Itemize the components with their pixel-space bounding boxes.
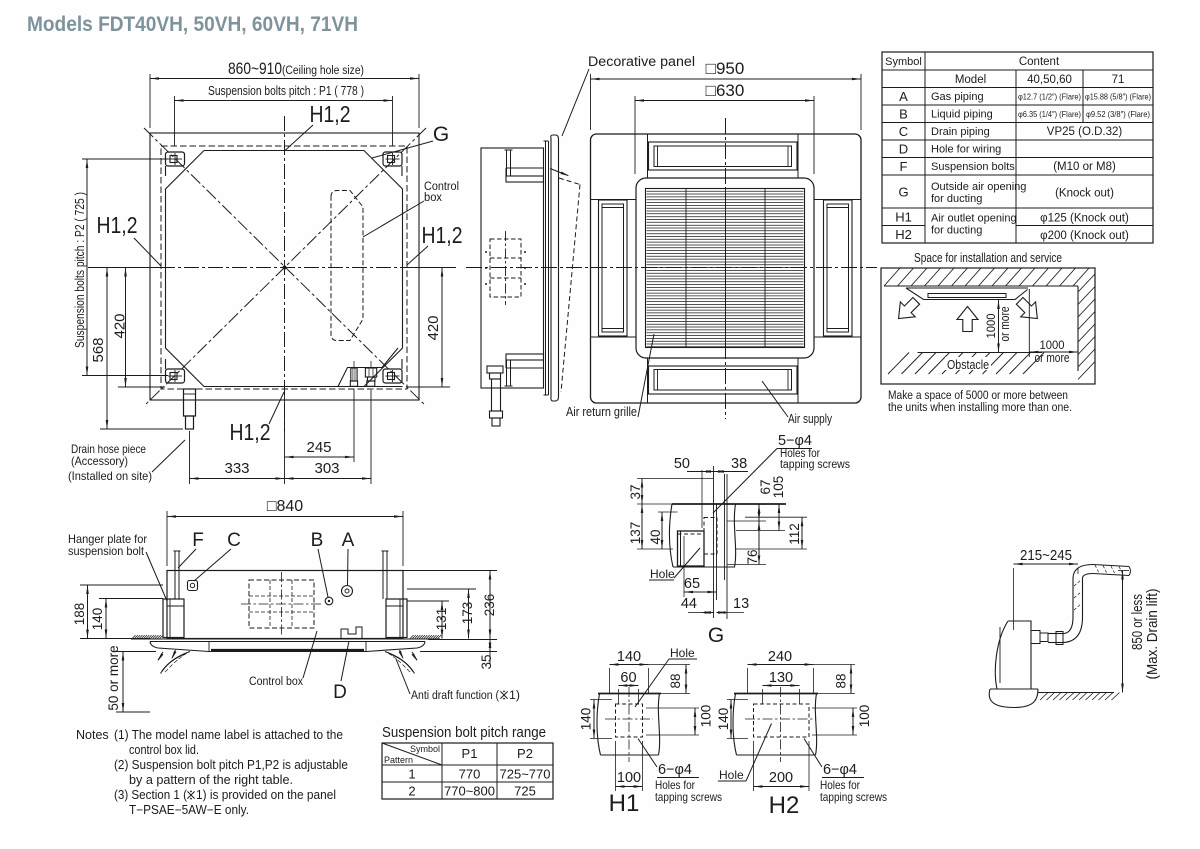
svg-text:Drain piping: Drain piping bbox=[931, 126, 990, 138]
svg-text:40,50,60: 40,50,60 bbox=[1027, 74, 1072, 86]
svg-text:88: 88 bbox=[668, 673, 683, 688]
svg-text:(Accessory): (Accessory) bbox=[71, 454, 128, 468]
svg-text:(M10 or M8): (M10 or M8) bbox=[1053, 161, 1116, 173]
svg-text:140: 140 bbox=[617, 649, 641, 665]
svg-text:F: F bbox=[192, 530, 204, 551]
svg-text:725~770: 725~770 bbox=[500, 767, 551, 782]
svg-text:(2) Suspension bolt pitch P1,P: (2) Suspension bolt pitch P1,P2 is adjus… bbox=[114, 758, 348, 772]
svg-text:H1,2: H1,2 bbox=[422, 222, 463, 248]
svg-text:φ125 (Knock out): φ125 (Knock out) bbox=[1040, 213, 1129, 225]
svg-text:or more: or more bbox=[1035, 351, 1070, 365]
svg-text:71: 71 bbox=[1112, 74, 1125, 86]
svg-text:725: 725 bbox=[514, 784, 536, 799]
svg-text:50: 50 bbox=[674, 456, 690, 472]
svg-text:1) is provided on the panel: 1) is provided on the panel bbox=[196, 788, 336, 802]
svg-text:38: 38 bbox=[731, 456, 747, 472]
svg-text:100: 100 bbox=[617, 770, 641, 786]
svg-text:50 or more: 50 or more bbox=[106, 645, 121, 710]
svg-text:860~910: 860~910 bbox=[228, 60, 282, 78]
svg-text:or more: or more bbox=[998, 306, 1012, 341]
svg-text:D: D bbox=[333, 682, 347, 703]
svg-text:Models FDT40VH, 50VH, 60VH, 7: Models FDT40VH, 50VH, 60VH, 71VH bbox=[27, 12, 358, 36]
svg-text:P1: P1 bbox=[462, 746, 478, 761]
svg-text:1000: 1000 bbox=[984, 313, 998, 338]
svg-text:2: 2 bbox=[408, 784, 415, 799]
svg-text:H1,2: H1,2 bbox=[97, 212, 138, 238]
svg-text:φ12.7 (1/2″) (Flare): φ12.7 (1/2″) (Flare) bbox=[1018, 92, 1081, 102]
svg-text:suspension bolt: suspension bolt bbox=[68, 544, 145, 558]
svg-text:H2: H2 bbox=[895, 227, 912, 242]
svg-text:Control box: Control box bbox=[249, 674, 304, 688]
svg-text:F: F bbox=[900, 159, 908, 174]
svg-text:Anti draft function (: Anti draft function ( bbox=[411, 688, 500, 702]
svg-text:H1,2: H1,2 bbox=[230, 419, 271, 445]
svg-text:(Installed on site): (Installed on site) bbox=[68, 469, 152, 483]
svg-text:box: box bbox=[424, 192, 442, 204]
svg-text:140: 140 bbox=[716, 708, 731, 731]
svg-text:88: 88 bbox=[834, 673, 849, 688]
svg-text:40: 40 bbox=[648, 529, 663, 544]
svg-text:by a pattern of the right tabl: by a pattern of the right table. bbox=[129, 773, 293, 787]
svg-text:420: 420 bbox=[112, 313, 129, 338]
svg-text:(1) The model name label is at: (1) The model name label is attached to … bbox=[114, 728, 343, 742]
svg-text:6−φ4: 6−φ4 bbox=[658, 762, 692, 778]
svg-text:112: 112 bbox=[787, 523, 802, 545]
svg-text:Model: Model bbox=[955, 74, 986, 86]
svg-text:44: 44 bbox=[681, 596, 697, 612]
svg-text:76: 76 bbox=[745, 549, 760, 564]
svg-text:H1: H1 bbox=[609, 790, 640, 817]
svg-text:G: G bbox=[898, 185, 908, 200]
svg-text:Hole for wiring: Hole for wiring bbox=[931, 144, 1001, 156]
svg-text:φ9.52 (3/8″) (Flare): φ9.52 (3/8″) (Flare) bbox=[1086, 109, 1150, 119]
svg-text:131: 131 bbox=[434, 608, 449, 631]
svg-text:Suspension bolts pitch : P2 (: Suspension bolts pitch : P2 ( 725 ) bbox=[73, 192, 87, 348]
svg-text:Gas piping: Gas piping bbox=[931, 91, 984, 103]
svg-text:tapping screws: tapping screws bbox=[780, 459, 850, 471]
svg-text:H2: H2 bbox=[769, 792, 800, 819]
svg-text:303: 303 bbox=[314, 460, 339, 477]
svg-text:Air supply: Air supply bbox=[788, 412, 833, 426]
svg-text:for ducting: for ducting bbox=[931, 193, 982, 205]
svg-text:G: G bbox=[708, 624, 724, 647]
svg-text:control box lid.: control box lid. bbox=[129, 743, 199, 757]
svg-text:568: 568 bbox=[90, 337, 107, 362]
svg-text:Symbol: Symbol bbox=[885, 56, 922, 68]
svg-text:35: 35 bbox=[479, 654, 494, 669]
svg-text:A: A bbox=[899, 89, 908, 104]
svg-text:(Ceiling hole size): (Ceiling hole size) bbox=[282, 65, 364, 77]
svg-text:100: 100 bbox=[699, 705, 714, 728]
svg-text:Hole: Hole bbox=[650, 567, 675, 581]
svg-text:Hole: Hole bbox=[670, 646, 695, 660]
svg-text:420: 420 bbox=[425, 315, 442, 340]
svg-text:105: 105 bbox=[771, 476, 786, 499]
svg-text:240: 240 bbox=[768, 649, 792, 665]
svg-text:tapping screws: tapping screws bbox=[655, 790, 722, 804]
svg-text:37: 37 bbox=[628, 484, 643, 499]
svg-text:236: 236 bbox=[482, 594, 497, 617]
svg-text:(Max. Drain lift): (Max. Drain lift) bbox=[1144, 589, 1161, 680]
svg-text:6−φ4: 6−φ4 bbox=[823, 762, 857, 778]
svg-text:Air return grille: Air return grille bbox=[566, 405, 637, 419]
svg-text:Symbol: Symbol bbox=[410, 744, 440, 754]
svg-text:770~800: 770~800 bbox=[444, 784, 495, 799]
svg-text:173: 173 bbox=[460, 602, 475, 625]
svg-text:C: C bbox=[899, 124, 908, 139]
svg-text:A: A bbox=[342, 530, 355, 551]
svg-text:65: 65 bbox=[684, 576, 700, 592]
svg-text:φ15.88 (5/8″) (Flare): φ15.88 (5/8″) (Flare) bbox=[1085, 92, 1151, 102]
svg-text:140: 140 bbox=[90, 608, 105, 631]
svg-text:(Knock out): (Knock out) bbox=[1055, 188, 1114, 200]
svg-text:D: D bbox=[899, 142, 908, 157]
svg-text:VP25 (O.D.32): VP25 (O.D.32) bbox=[1047, 126, 1123, 138]
svg-text:φ200 (Knock out): φ200 (Knock out) bbox=[1040, 230, 1129, 242]
svg-text:770: 770 bbox=[459, 767, 481, 782]
svg-text:□630: □630 bbox=[706, 81, 745, 100]
svg-text:C: C bbox=[227, 530, 241, 551]
svg-text:H1: H1 bbox=[895, 210, 912, 225]
svg-text:Suspension bolts: Suspension bolts bbox=[931, 161, 1015, 173]
svg-text:H1,2: H1,2 bbox=[310, 101, 351, 127]
svg-text:333: 333 bbox=[224, 460, 249, 477]
svg-text:P2: P2 bbox=[517, 746, 533, 761]
svg-text:T−PSAE−5AW−E only.: T−PSAE−5AW−E only. bbox=[129, 803, 249, 817]
svg-text:188: 188 bbox=[72, 603, 87, 626]
svg-text:60: 60 bbox=[620, 670, 636, 686]
svg-text:130: 130 bbox=[769, 670, 793, 686]
svg-text:245: 245 bbox=[306, 439, 331, 456]
svg-text:13: 13 bbox=[733, 596, 749, 612]
svg-text:1): 1) bbox=[509, 688, 520, 702]
svg-text:Hole: Hole bbox=[719, 768, 744, 782]
svg-text:□840: □840 bbox=[267, 498, 303, 515]
svg-text:G: G bbox=[433, 123, 449, 146]
svg-text:Obstacle: Obstacle bbox=[947, 358, 989, 372]
svg-text:Content: Content bbox=[1019, 56, 1060, 68]
svg-text:B: B bbox=[311, 530, 324, 551]
svg-text:Suspension bolt pitch range: Suspension bolt pitch range bbox=[382, 725, 546, 741]
svg-text:B: B bbox=[899, 107, 908, 122]
svg-text:Outside air opening: Outside air opening bbox=[931, 181, 1026, 193]
svg-text:(3) Section 1 (: (3) Section 1 ( bbox=[114, 788, 188, 802]
svg-text:140: 140 bbox=[579, 708, 594, 731]
svg-text:200: 200 bbox=[769, 770, 793, 786]
svg-text:Air outlet opening: Air outlet opening bbox=[931, 213, 1017, 225]
svg-text:Pattern: Pattern bbox=[384, 755, 413, 765]
svg-text:for ducting: for ducting bbox=[931, 225, 982, 237]
svg-text:137: 137 bbox=[628, 522, 643, 545]
svg-text:Notes: Notes bbox=[76, 728, 109, 742]
svg-text:1: 1 bbox=[408, 767, 415, 782]
svg-text:□950: □950 bbox=[706, 59, 745, 78]
svg-text:tapping screws: tapping screws bbox=[820, 790, 887, 804]
svg-text:Liquid piping: Liquid piping bbox=[931, 109, 993, 121]
svg-text:φ6.35 (1/4″) (Flare): φ6.35 (1/4″) (Flare) bbox=[1018, 109, 1081, 119]
svg-text:Suspension bolts pitch : P1 (: Suspension bolts pitch : P1 ( 778 ) bbox=[208, 84, 364, 98]
svg-text:Space for installation and ser: Space for installation and service bbox=[914, 251, 1062, 265]
svg-text:5−φ4: 5−φ4 bbox=[778, 433, 812, 449]
svg-text:Decorative panel: Decorative panel bbox=[588, 54, 695, 69]
svg-text:100: 100 bbox=[857, 705, 872, 728]
svg-text:the units when installing more: the units when installing more than one. bbox=[888, 400, 1072, 414]
svg-text:215~245: 215~245 bbox=[1020, 547, 1072, 564]
